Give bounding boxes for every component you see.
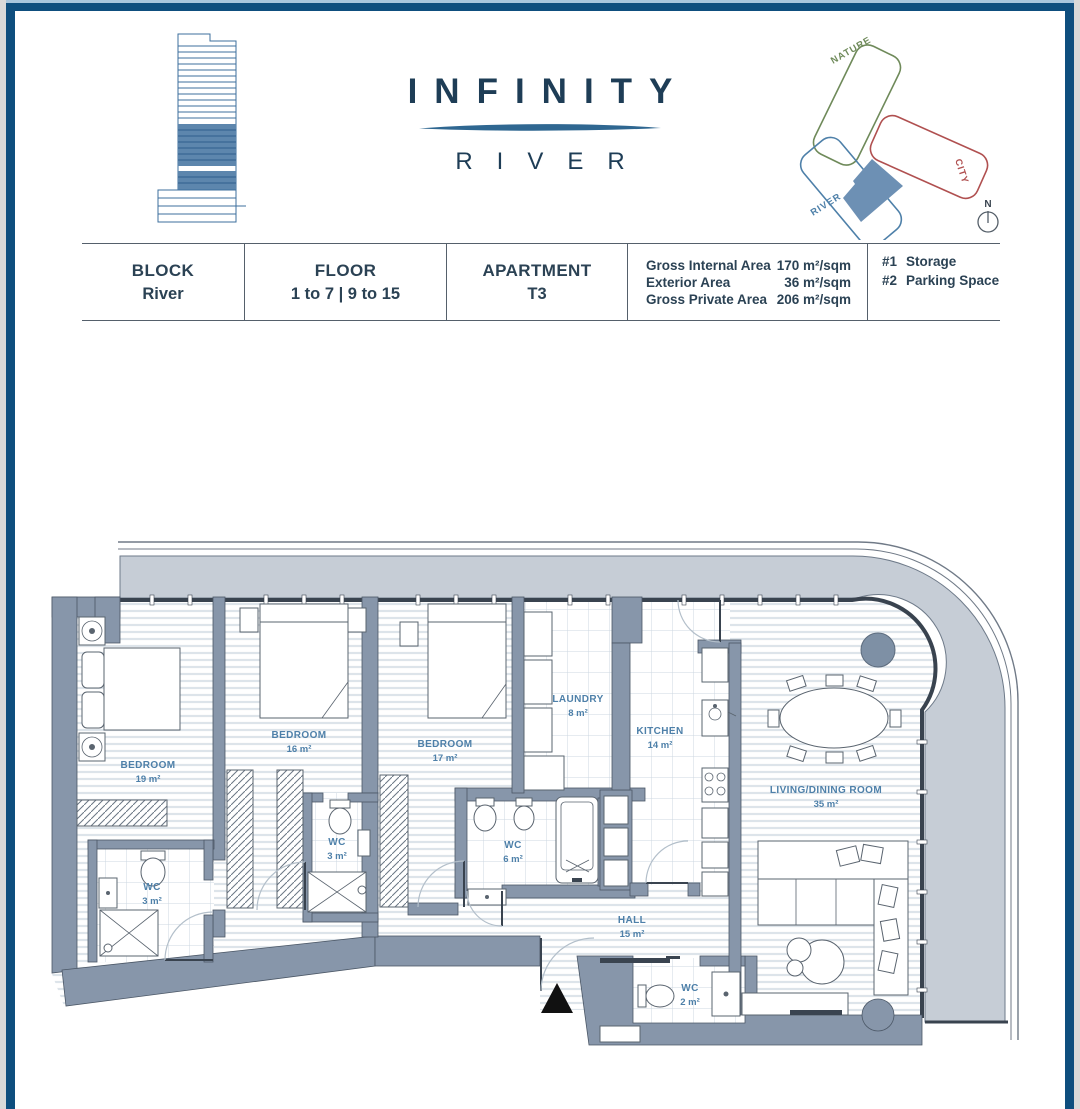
- unit-info-table: BLOCK River FLOOR 1 to 7 | 9 to 15 APART…: [82, 243, 1000, 321]
- room-label: HALL: [618, 915, 646, 926]
- extra-row: #1 Storage: [882, 254, 1000, 269]
- room-area: 35 m²: [814, 799, 839, 810]
- room-area: 6 m²: [503, 854, 523, 865]
- room-area: 2 m²: [680, 997, 700, 1008]
- room-area: 16 m²: [287, 744, 312, 755]
- floor-label: FLOOR: [315, 261, 377, 281]
- room-label: KITCHEN: [636, 726, 683, 737]
- room-label: BEDROOM: [120, 760, 175, 771]
- floor-plan: BEDROOM 19 m² BEDROOM 16 m² BEDROOM 17 m…: [40, 530, 1040, 1105]
- room-label: BEDROOM: [417, 739, 472, 750]
- extra-row: #2 Parking Space: [882, 273, 1000, 288]
- area-label: Gross Internal Area: [646, 258, 771, 273]
- room-area: 19 m²: [136, 774, 161, 785]
- page-edge: [1074, 0, 1080, 1109]
- frame-border: [1065, 3, 1074, 1109]
- block-value: River: [142, 285, 183, 304]
- floor-value: 1 to 7 | 9 to 15: [291, 285, 400, 304]
- site-diagram: NATURE CITY RIVER N: [795, 20, 1010, 240]
- apartment-value: T3: [527, 285, 546, 304]
- swoosh-icon: [415, 122, 665, 134]
- city-label: CITY: [952, 158, 970, 186]
- extra-value: Storage: [906, 254, 956, 269]
- brand-subtitle: RIVER: [330, 148, 750, 176]
- area-label: Exterior Area: [646, 275, 730, 290]
- room-area: 3 m²: [327, 851, 347, 862]
- room-label: LIVING/DINING ROOM: [770, 785, 882, 796]
- area-row: Exterior Area 36 m²/sqm: [646, 275, 851, 290]
- brand-title-block: INFINITY RIVER: [330, 72, 750, 176]
- room-label: WC: [504, 840, 521, 851]
- brochure-page: INFINITY RIVER NATURE CITY RIVER N BLOCK…: [0, 0, 1080, 1109]
- room-area: 17 m²: [433, 753, 458, 764]
- area-row: Gross Private Area 206 m²/sqm: [646, 292, 851, 307]
- compass-n: N: [984, 199, 991, 210]
- room-label: WC: [143, 882, 160, 893]
- room-label: WC: [328, 837, 345, 848]
- compass-icon: N: [978, 199, 998, 232]
- areas-cell: Gross Internal Area 170 m²/sqm Exterior …: [628, 244, 868, 320]
- extra-value: Parking Space: [906, 273, 999, 288]
- floor-cell: FLOOR 1 to 7 | 9 to 15: [245, 244, 447, 320]
- apartment-cell: APARTMENT T3: [447, 244, 628, 320]
- extras-cell: #1 Storage #2 Parking Space: [868, 244, 1000, 320]
- frame-border: [6, 3, 15, 1109]
- block-cell: BLOCK River: [82, 244, 245, 320]
- frame-border: [6, 3, 1074, 11]
- block-label: BLOCK: [132, 261, 194, 281]
- room-label: LAUNDRY: [552, 694, 603, 705]
- apartment-label: APARTMENT: [482, 261, 591, 281]
- extra-number: #1: [882, 254, 897, 269]
- area-label: Gross Private Area: [646, 292, 767, 307]
- area-value: 206 m²/sqm: [777, 292, 851, 307]
- room-area: 8 m²: [568, 708, 588, 719]
- room-area: 14 m²: [648, 740, 673, 751]
- room-area: 3 m²: [142, 896, 162, 907]
- room-label: WC: [681, 983, 698, 994]
- extra-number: #2: [882, 273, 897, 288]
- area-value: 170 m²/sqm: [777, 258, 851, 273]
- brand-title: INFINITY: [330, 72, 750, 112]
- area-row: Gross Internal Area 170 m²/sqm: [646, 258, 851, 273]
- room-label: BEDROOM: [271, 730, 326, 741]
- area-value: 36 m²/sqm: [784, 275, 851, 290]
- room-area: 15 m²: [620, 929, 645, 940]
- tower-logo-icon: [148, 32, 258, 232]
- nature-wing-outline: [809, 41, 905, 170]
- entrance-step: [600, 1026, 640, 1042]
